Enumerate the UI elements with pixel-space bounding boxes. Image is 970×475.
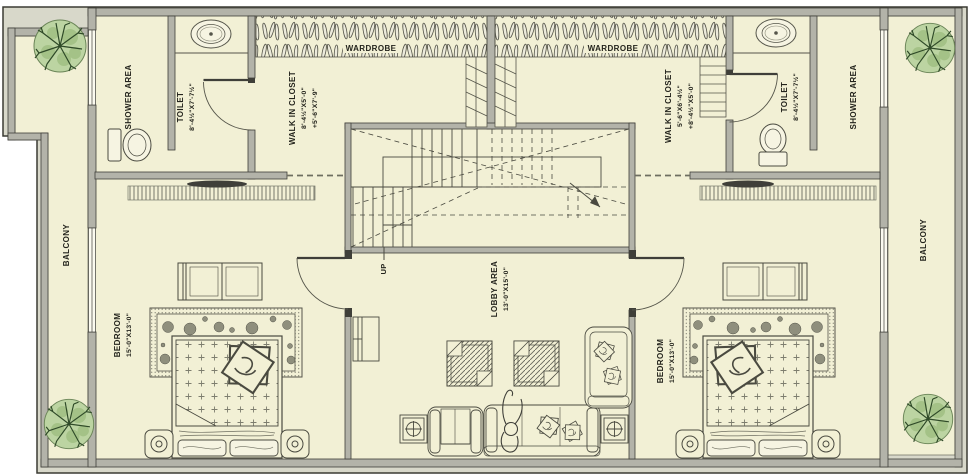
bedroom-right-label: BEDROOM <box>656 339 665 384</box>
washbasin <box>191 20 231 48</box>
tv-console <box>353 317 379 361</box>
closet-left-dims: 8'-4½"X5'-0" <box>300 87 308 129</box>
lobby-dims: 13'-0"X15'-0" <box>503 267 510 311</box>
wc <box>108 129 151 161</box>
closet-left-dims2: +5'-6"X7'-9" <box>312 88 319 128</box>
tree-icon <box>44 399 93 448</box>
washbasin <box>756 19 796 47</box>
stairs-up-label: UP <box>379 263 388 274</box>
center-table <box>514 341 559 386</box>
bedroom-left-dims: 15'-0"X13'-0" <box>126 313 133 357</box>
toilet-right-label: TOILET <box>780 82 789 113</box>
balcony-left-label: BALCONY <box>62 224 71 267</box>
shower-left-label: SHOWER AREA <box>124 65 133 130</box>
bedroom-right-dims: 15'-0"X13'-0" <box>669 339 676 383</box>
tree-icon <box>34 20 86 72</box>
closet-right-dims2: +8'-4½"X5'-0" <box>687 83 695 129</box>
closet-right-dims: 5'-6"X6'-4½" <box>676 85 684 127</box>
toilet-left-label: TOILET <box>176 92 185 123</box>
lobby-label: LOBBY AREA <box>490 261 499 317</box>
tree-icon <box>905 23 954 72</box>
toilet-right-dims: 8'-4½"X7'-7½" <box>792 73 800 121</box>
wc <box>759 124 787 166</box>
loveseat <box>428 407 483 456</box>
closet-right-label: WALK IN CLOSET <box>664 69 673 143</box>
side-table <box>601 415 628 443</box>
wardrobe-right-label: WARDROBE <box>588 44 639 53</box>
closet-left-label: WALK IN CLOSET <box>288 71 297 145</box>
floor-plan: SHOWER AREA TOILET 8'-4½"X7'-7½" WALK IN… <box>0 0 970 475</box>
wardrobe-left-label: WARDROBE <box>346 44 397 53</box>
chaise <box>585 327 632 408</box>
side-table <box>400 415 427 443</box>
toilet-left-dims: 8'-4½"X7'-7½" <box>188 83 196 131</box>
bedroom-left-label: BEDROOM <box>113 313 122 358</box>
shower-right-label: SHOWER AREA <box>849 65 858 130</box>
center-table <box>447 341 492 386</box>
floor-plan-canvas: SHOWER AREA TOILET 8'-4½"X7'-7½" WALK IN… <box>0 0 970 475</box>
tree-icon <box>903 394 952 443</box>
balcony-right-label: BALCONY <box>919 219 928 262</box>
